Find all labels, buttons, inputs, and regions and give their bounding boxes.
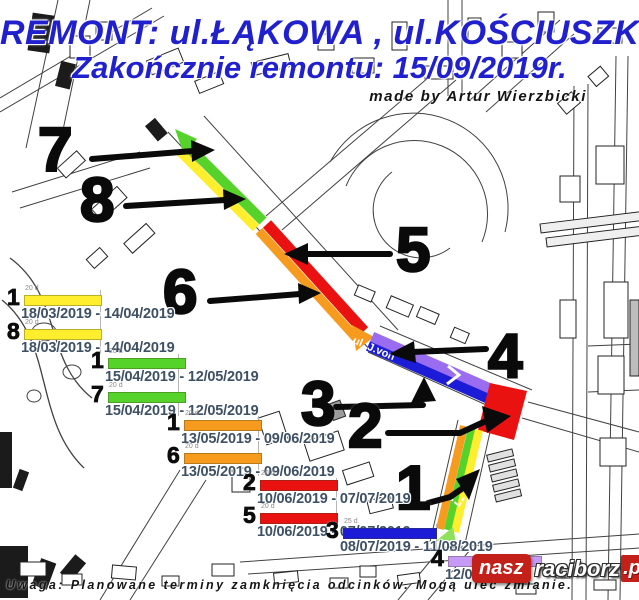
- legend-item-duration: 20 d: [261, 503, 275, 510]
- road-segment-4-purple: [372, 337, 504, 395]
- legend-item-dates: 18/03/2019 - 14/04/2019: [21, 306, 174, 322]
- map-segment-number-5: 5: [396, 220, 430, 282]
- legend-bar: [184, 453, 262, 464]
- page-subtitle: Zakończnie remontu: 15/09/2019r.: [0, 50, 639, 86]
- legend-bar: [108, 392, 186, 403]
- logo-raciborz-text: raciborz: [534, 558, 620, 580]
- road-segment-5-red: [267, 224, 364, 331]
- legend-item-duration: 20 d: [185, 410, 199, 417]
- map-segment-number-8: 8: [80, 170, 114, 232]
- legend-item-dates: 15/04/2019 - 12/05/2019: [105, 369, 258, 385]
- legend-item-duration: 20 d: [261, 470, 275, 477]
- legend-item-dates: 13/05/2019 - 09/06/2019: [181, 464, 334, 480]
- map-segment-number-2: 2: [348, 396, 382, 458]
- legend-item-dates: 15/04/2019 - 12/05/2019: [105, 403, 258, 419]
- legend-item-number: 8: [7, 320, 20, 343]
- road-segment-8-yellow: [179, 151, 256, 228]
- legend-bar: [24, 329, 102, 340]
- map-segment-number-4: 4: [488, 326, 522, 388]
- legend-item-number: 6: [167, 444, 180, 467]
- legend-item-duration: 25 d: [344, 518, 358, 525]
- legend-bar: [260, 480, 338, 491]
- legend-item-duration: 20 d: [25, 285, 39, 292]
- map-hatched-buildings: [487, 449, 522, 502]
- legend-item-number: 1: [7, 286, 20, 309]
- legend-bar: [108, 358, 186, 369]
- logo-nasz-badge: nasz: [472, 554, 531, 583]
- page-title: REMONT: ul.ŁĄKOWA , ul.KOŚCIUSZKI: [0, 14, 639, 53]
- legend-item-dates: 08/07/2019 - 11/08/2019: [340, 539, 493, 555]
- legend-item-number: 2: [243, 471, 256, 494]
- legend-bar: [24, 295, 102, 306]
- arrow-4: [412, 349, 486, 352]
- legend-item-number: 1: [91, 349, 104, 372]
- legend-item-duration: 20 d: [25, 319, 39, 326]
- legend-item-duration: 25 d: [449, 546, 463, 553]
- legend-item-duration: 20 d: [109, 382, 123, 389]
- author-credit: made by Artur Wierzbicki: [369, 88, 587, 105]
- legend-item-duration: 20 d: [185, 443, 199, 450]
- legend-item-number: 1: [167, 411, 180, 434]
- map-segment-number-3: 3: [301, 374, 335, 436]
- arrow-6: [210, 294, 300, 301]
- map-segment-number-1: 1: [396, 458, 430, 520]
- map-segment-number-7: 7: [38, 120, 72, 182]
- logo-pl-badge: .pl: [621, 555, 639, 582]
- legend-item-number: 3: [326, 519, 339, 542]
- legend-bar: [343, 528, 437, 539]
- legend-bar: [184, 420, 262, 431]
- legend-item-dates: 10/06/2019 - 07/07/2019: [257, 491, 410, 507]
- legend-item-number: 5: [243, 504, 256, 527]
- legend-item-number: 7: [91, 383, 104, 406]
- arrow-8: [126, 200, 225, 206]
- legend-item-dates: 13/05/2019 - 09/06/2019: [181, 431, 334, 447]
- naszraciborz-logo: nasz raciborz .pl: [472, 554, 639, 583]
- arrow-7: [92, 151, 193, 159]
- legend-item-duration: 20 d: [109, 348, 123, 355]
- infographic-canvas: { "title": { "line1": "REMONT: ul.ŁĄKOWA…: [0, 0, 639, 600]
- legend-item-number: 4: [431, 547, 444, 570]
